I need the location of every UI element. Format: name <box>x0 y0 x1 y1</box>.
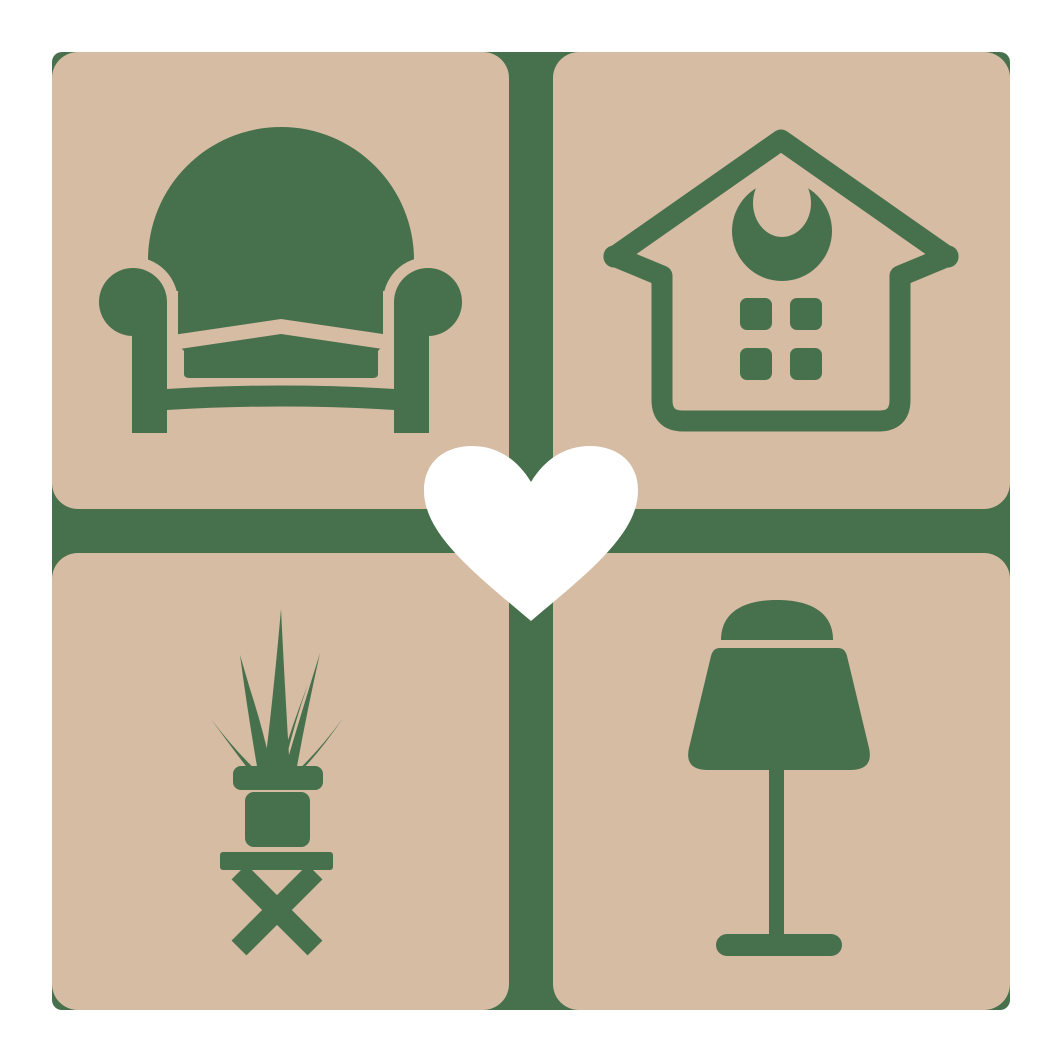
armchair-rail <box>167 386 395 411</box>
plant-pot-rim <box>233 766 323 790</box>
plant-pot-body <box>245 792 310 847</box>
logo <box>0 0 1063 1063</box>
lamp-shade <box>688 648 870 770</box>
stool-seat <box>220 852 333 870</box>
lamp-base <box>716 934 842 956</box>
house-gable-ornament-hole <box>753 169 811 237</box>
lamp-stem <box>769 770 784 942</box>
